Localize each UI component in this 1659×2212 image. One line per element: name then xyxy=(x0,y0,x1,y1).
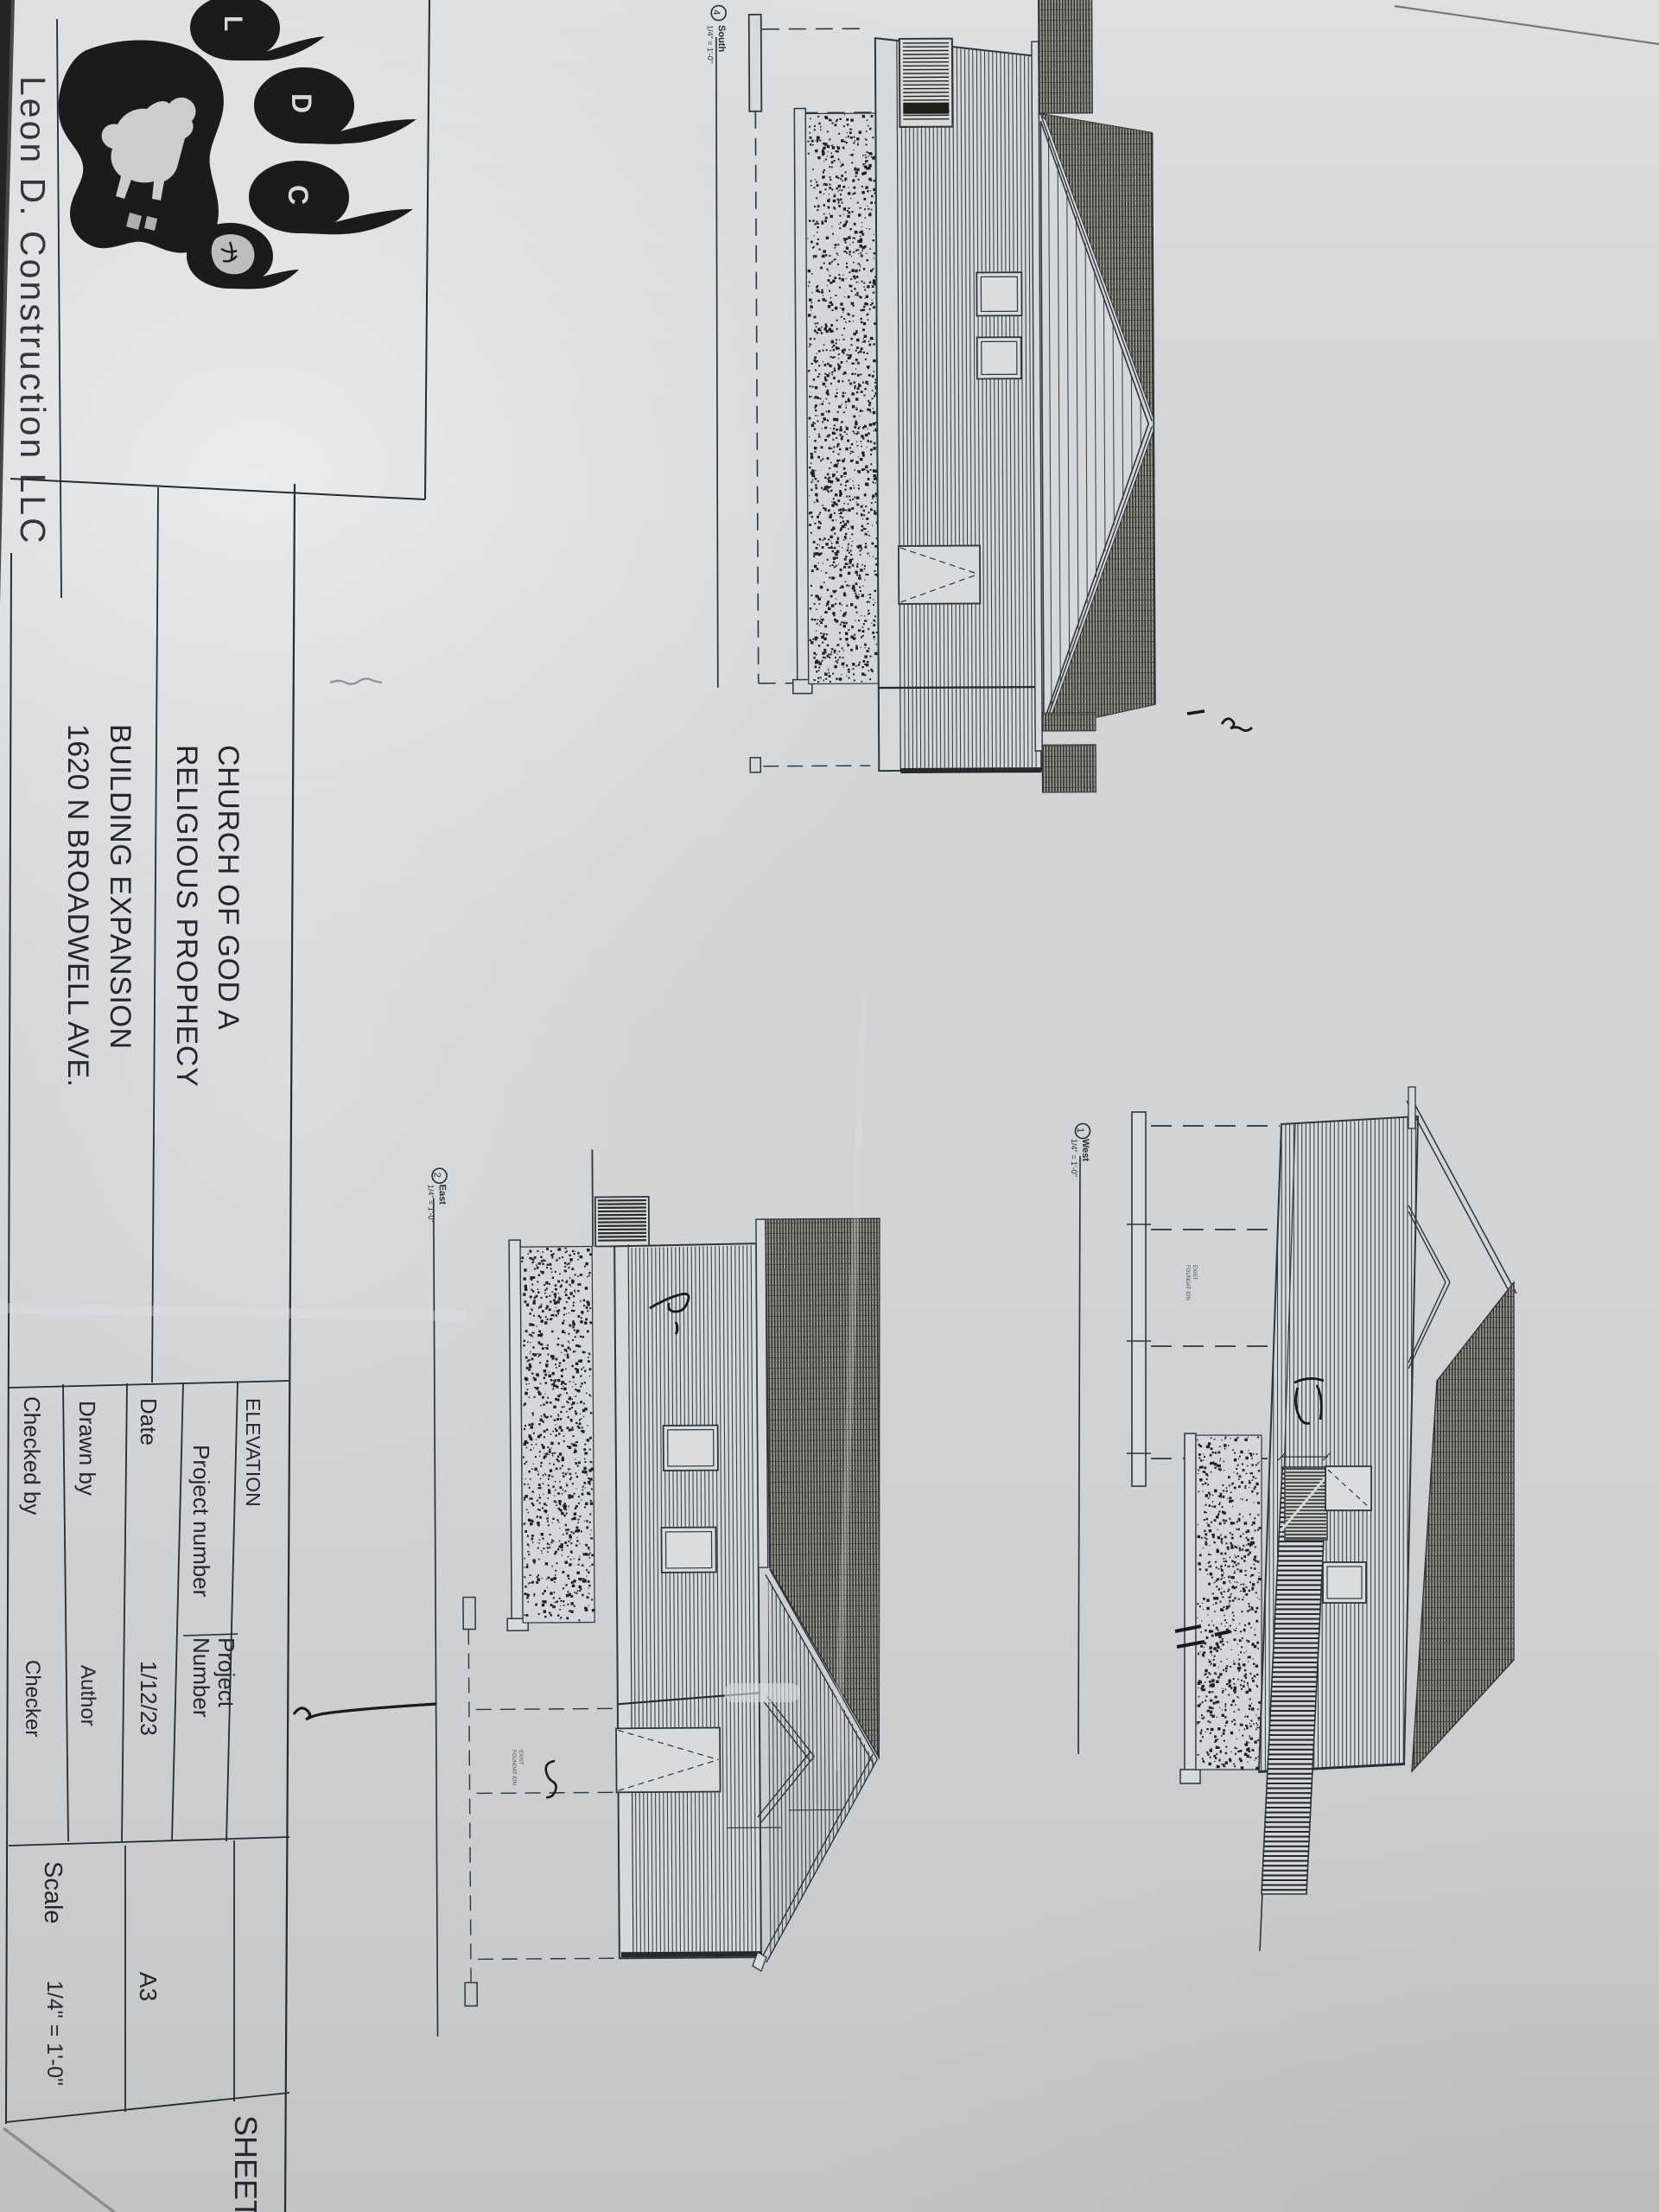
svg-text:1/4" = 1'-0": 1/4" = 1'-0" xyxy=(42,1980,67,2086)
svg-text:EXIST: EXIST xyxy=(518,1750,523,1765)
svg-text:2: 2 xyxy=(432,1173,442,1178)
svg-text:Drawn by: Drawn by xyxy=(74,1401,100,1496)
svg-text:A3: A3 xyxy=(135,1972,162,2001)
svg-text:FOUNDAT ION: FOUNDAT ION xyxy=(511,1750,516,1785)
svg-text:1/12/23: 1/12/23 xyxy=(136,1661,162,1736)
svg-text:SHEET: SHEET xyxy=(228,2115,264,2212)
svg-text:BUILDING EXPANSION: BUILDING EXPANSION xyxy=(104,724,137,1050)
svg-text:East: East xyxy=(437,1185,448,1205)
svg-text:RELIGIOUS PROPHECY: RELIGIOUS PROPHECY xyxy=(170,745,203,1087)
svg-text:Author: Author xyxy=(76,1665,99,1726)
svg-text:1: 1 xyxy=(1075,1128,1085,1133)
svg-text:Date: Date xyxy=(136,1398,162,1446)
svg-text:Checked by: Checked by xyxy=(19,1396,45,1515)
svg-text:EXIST: EXIST xyxy=(1192,1265,1197,1281)
svg-text:4: 4 xyxy=(711,10,721,15)
svg-text:Leon D. Construction LLC: Leon D. Construction LLC xyxy=(13,76,53,546)
svg-text:Project number: Project number xyxy=(188,1445,214,1598)
svg-text:1620 N BROADWELL AVE.: 1620 N BROADWELL AVE. xyxy=(61,724,94,1087)
svg-text:C: C xyxy=(283,185,314,205)
svg-text:Number: Number xyxy=(188,1637,214,1718)
svg-text:1/4" = 1'-0": 1/4" = 1'-0" xyxy=(706,25,715,63)
svg-text:Scale: Scale xyxy=(39,1861,67,1924)
svg-text:Checker: Checker xyxy=(21,1660,44,1737)
svg-text:CHURCH OF GOD A: CHURCH OF GOD A xyxy=(212,745,245,1030)
svg-text:FOUNDAT ION: FOUNDAT ION xyxy=(1185,1265,1190,1300)
svg-text:Project: Project xyxy=(213,1637,239,1708)
svg-text:1/4" = 1'-0": 1/4" = 1'-0" xyxy=(1070,1139,1078,1177)
svg-text:D: D xyxy=(286,93,317,113)
svg-text:South: South xyxy=(716,25,727,53)
svg-text:ELEVATION: ELEVATION xyxy=(242,1398,264,1507)
svg-text:L: L xyxy=(219,16,247,31)
svg-text:West: West xyxy=(1080,1139,1090,1161)
